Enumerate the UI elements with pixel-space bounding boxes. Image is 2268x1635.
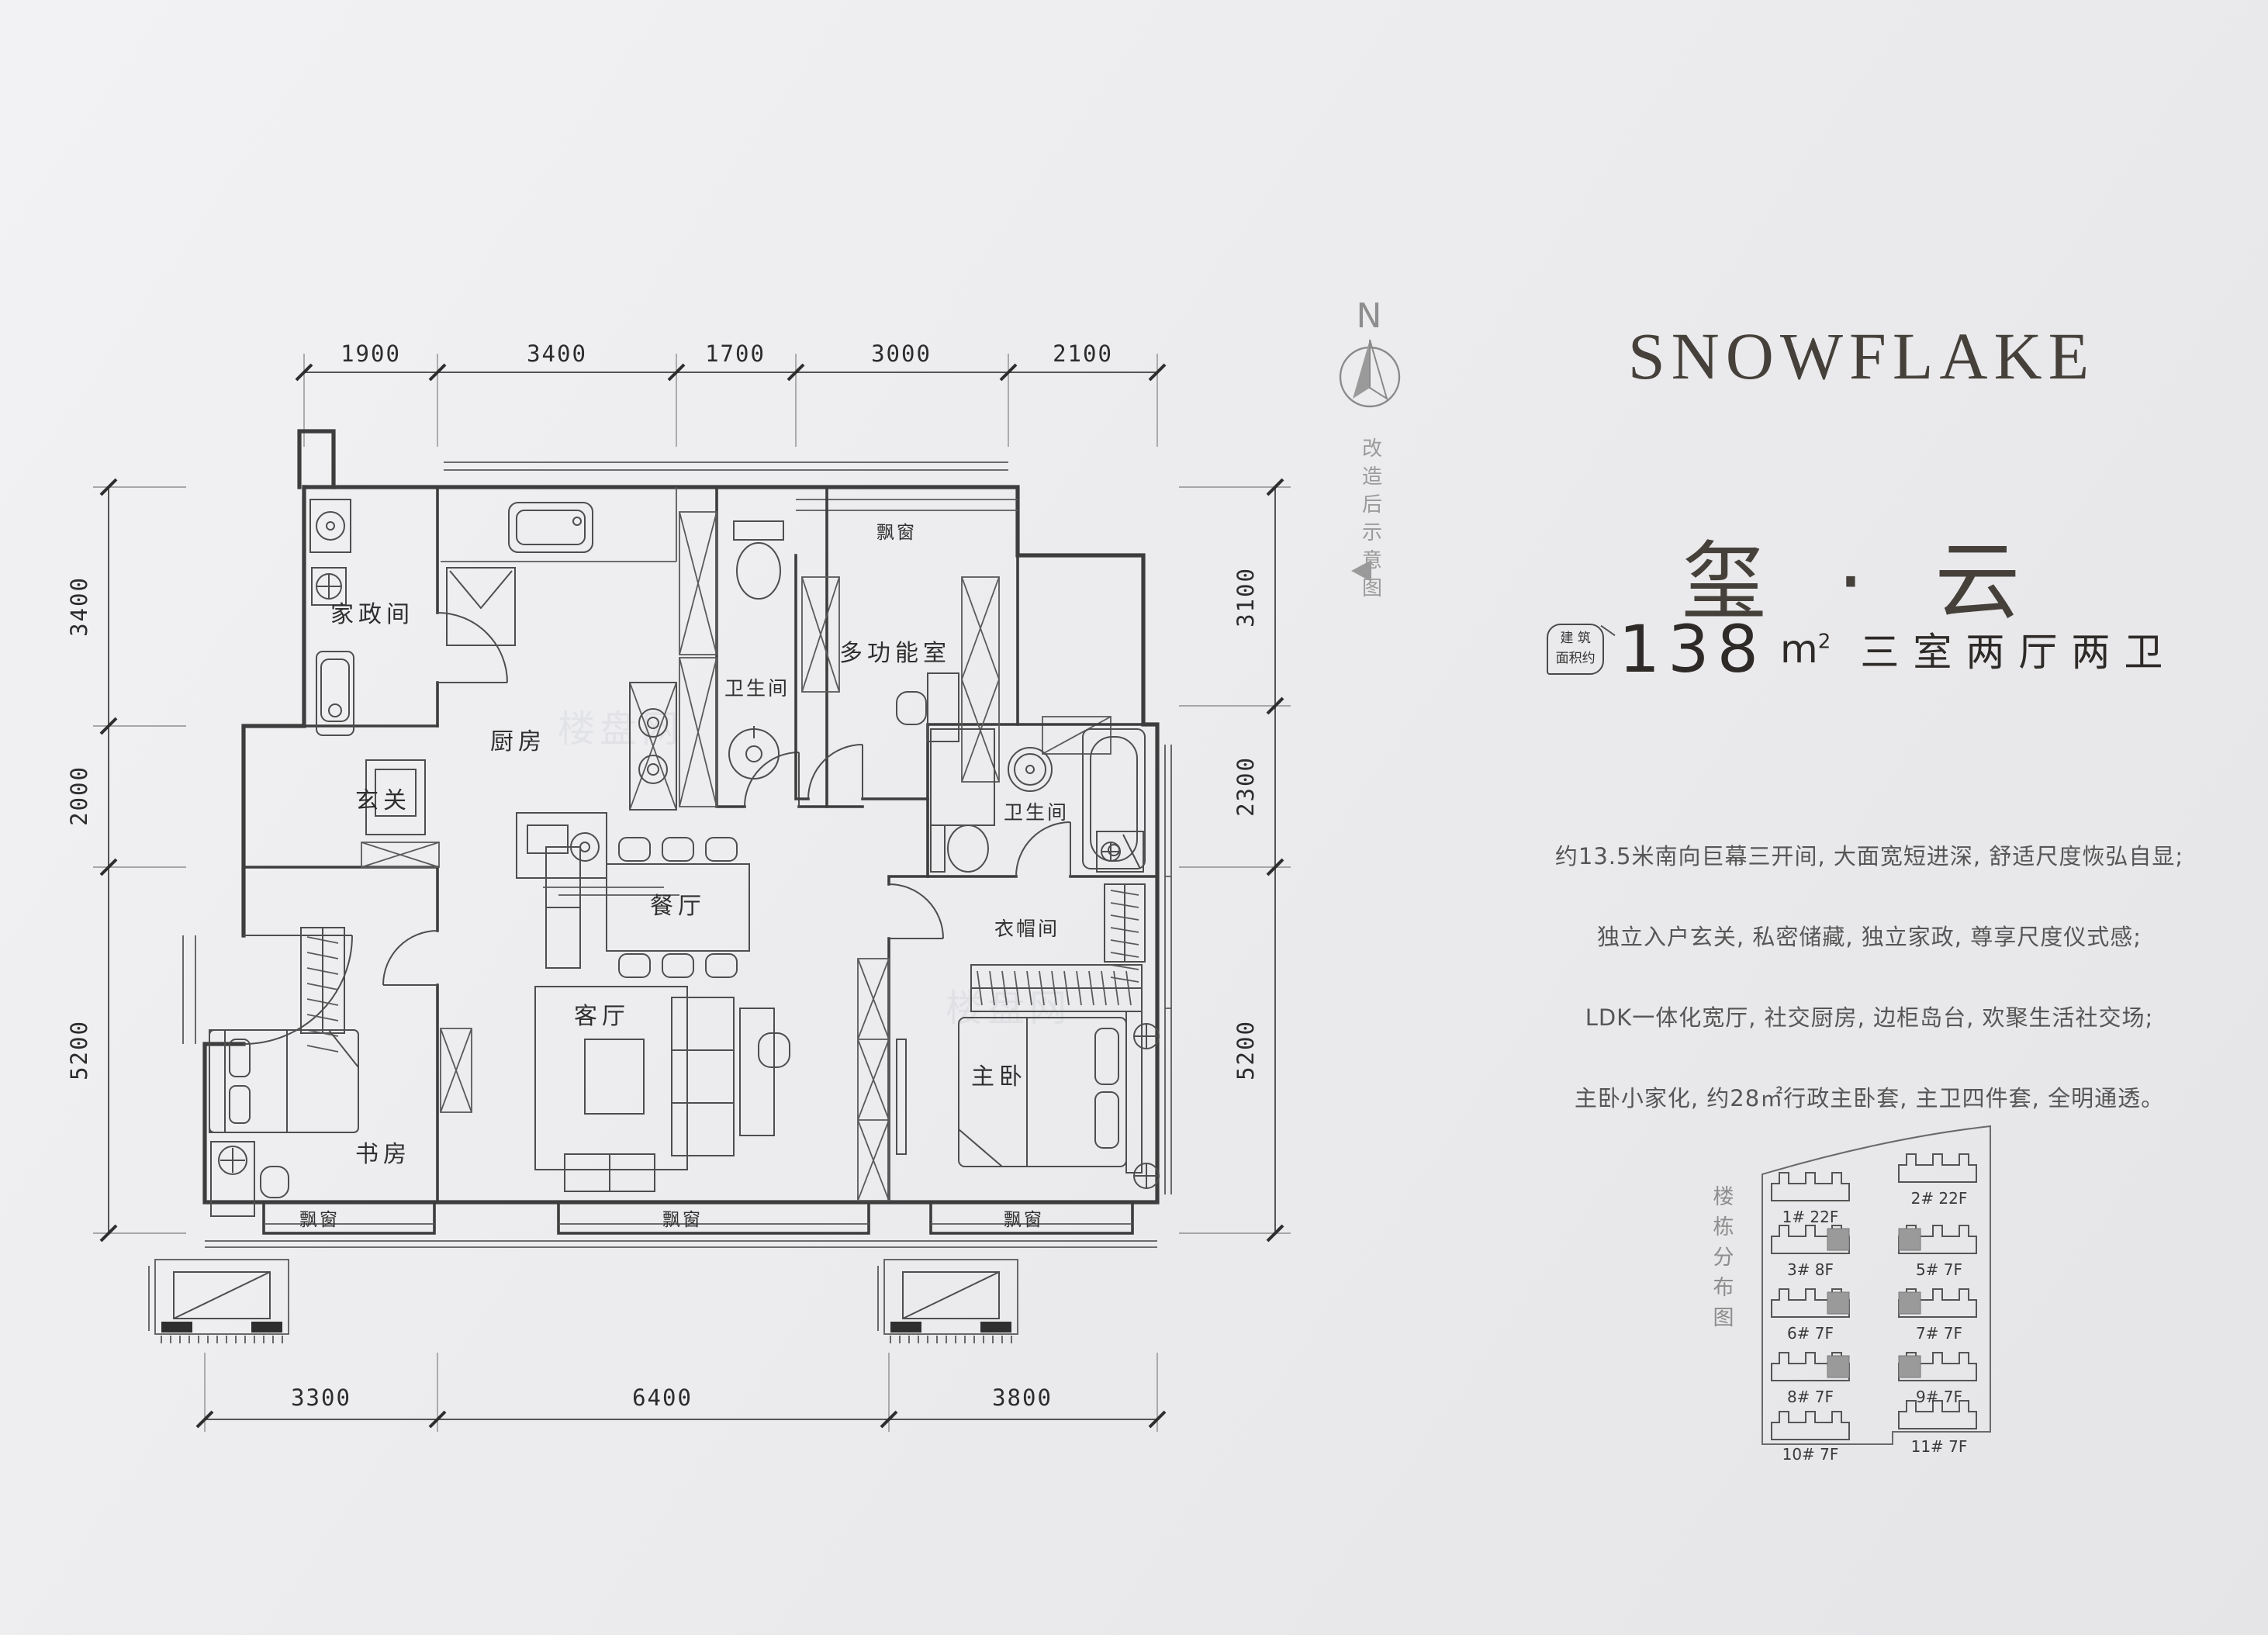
room-label-kitchen: 厨房 bbox=[490, 728, 546, 755]
floorplan-svg: 楼盘网 楼盘网 1900 3400 1700 3000 2100 3300 64… bbox=[0, 0, 2268, 1635]
room-label-cloak: 衣帽间 bbox=[994, 918, 1060, 940]
room-label-master: 主卧 bbox=[971, 1063, 1027, 1091]
dim-right-3: 5200 bbox=[1233, 1020, 1259, 1080]
room-label-bath-b: 卫生间 bbox=[1004, 801, 1069, 824]
dim-right-1: 3100 bbox=[1233, 567, 1259, 627]
ac-units bbox=[149, 1260, 1018, 1343]
brand-title-en: SNOWFLAKE bbox=[1489, 320, 2234, 396]
room-label-study: 书房 bbox=[355, 1141, 411, 1168]
bathroom-b-fixtures bbox=[931, 729, 1145, 872]
area-summary: 建 筑 面积约 138 m2 三室两厅两卫 bbox=[1489, 611, 2234, 687]
building-label-5: 5# 7F bbox=[1916, 1260, 1962, 1279]
outer-walls bbox=[183, 431, 1171, 1247]
dimension-left: 3400 2000 5200 bbox=[66, 479, 186, 1241]
description-line-2: 独立入户玄关, 私密储藏, 独立家政, 尊享尺度仪式感; bbox=[1443, 920, 2268, 952]
watermark-text: 楼盘网 bbox=[946, 987, 1071, 1030]
compass-n-label: N bbox=[1357, 296, 1384, 336]
bay-window-label-living: 飘窗 bbox=[662, 1210, 703, 1230]
bathroom-a-fixtures bbox=[729, 521, 783, 779]
multi-room-fixtures bbox=[802, 577, 999, 782]
building-label-9: 9# 7F bbox=[1916, 1388, 1962, 1406]
dim-left-2: 2000 bbox=[66, 766, 92, 826]
building-10 bbox=[1772, 1412, 1849, 1440]
building-label-11: 11# 7F bbox=[1911, 1437, 1968, 1456]
area-unit-sup: 2 bbox=[1818, 631, 1831, 654]
arrow-left-icon bbox=[1351, 560, 1371, 582]
area-unit: m2 bbox=[1780, 627, 1831, 672]
area-badge-line1: 建 筑 bbox=[1556, 630, 1596, 650]
building-label-6: 6# 7F bbox=[1787, 1324, 1834, 1343]
sitemap-label: 楼栋分布图 bbox=[1705, 1185, 1736, 1336]
bay-window-label-study: 飘窗 bbox=[299, 1210, 340, 1230]
area-badge: 建 筑 面积约 bbox=[1547, 624, 1605, 676]
description-line-1: 约13.5米南向巨幕三开间, 大面宽短进深, 舒适尺度恢弘自显; bbox=[1443, 839, 2268, 872]
master-bedroom-fixtures bbox=[897, 1011, 1159, 1188]
room-label-multi: 多功能室 bbox=[839, 640, 951, 667]
dim-bottom-2: 6400 bbox=[632, 1384, 693, 1411]
building-label-3: 3# 8F bbox=[1787, 1260, 1834, 1279]
page: 楼盘网 楼盘网 1900 3400 1700 3000 2100 3300 64… bbox=[0, 0, 2268, 1635]
building-label-1: 1# 22F bbox=[1782, 1208, 1839, 1226]
study-fixtures bbox=[209, 928, 358, 1216]
dim-left-1: 3400 bbox=[66, 576, 92, 637]
dim-top-4: 3000 bbox=[871, 340, 932, 367]
bay-window-label-top: 飘窗 bbox=[876, 523, 917, 543]
area-layout: 三室两厅两卫 bbox=[1860, 621, 2176, 677]
kitchen-fixtures bbox=[441, 487, 717, 895]
dim-top-1: 1900 bbox=[341, 340, 401, 367]
dim-top-5: 2100 bbox=[1053, 340, 1113, 367]
building-1 bbox=[1772, 1173, 1849, 1201]
sitemap: 1# 22F 2# 22F 3# 8F 5# 7F 6# 7F 7# 7F 8#… bbox=[1762, 1126, 1990, 1464]
building-label-2: 2# 22F bbox=[1911, 1189, 1968, 1208]
building-label-8: 8# 7F bbox=[1787, 1388, 1834, 1406]
room-label-foyer: 玄关 bbox=[355, 787, 411, 814]
dim-left-3: 5200 bbox=[66, 1020, 92, 1080]
dim-top-2: 3400 bbox=[527, 340, 587, 367]
dimension-top: 1900 3400 1700 3000 2100 bbox=[296, 340, 1165, 447]
dim-top-3: 1700 bbox=[705, 340, 766, 367]
building-label-10: 10# 7F bbox=[1782, 1445, 1839, 1464]
room-label-dining: 餐厅 bbox=[650, 893, 706, 920]
dimension-bottom: 3300 6400 3800 bbox=[197, 1353, 1165, 1432]
living-fixtures bbox=[535, 959, 889, 1201]
dimension-right: 3100 2300 5200 bbox=[1179, 479, 1291, 1241]
building-2 bbox=[1899, 1154, 1976, 1182]
dim-bottom-3: 3800 bbox=[992, 1384, 1053, 1411]
dim-bottom-1: 3300 bbox=[291, 1384, 351, 1411]
dim-right-2: 2300 bbox=[1233, 756, 1259, 817]
room-label-bath-a: 卫生间 bbox=[724, 677, 790, 700]
bay-window-label-master: 飘窗 bbox=[1004, 1210, 1044, 1230]
compass: N bbox=[1340, 296, 1399, 406]
room-label-laundry: 家政间 bbox=[330, 601, 414, 628]
description-line-4: 主卧小家化, 约28㎡行政主卧套, 主卫四件套, 全明通透。 bbox=[1443, 1081, 2268, 1114]
room-label-living: 客厅 bbox=[574, 1003, 630, 1030]
description-line-3: LDK一体化宽厅, 社交厨房, 边柜岛台, 欢聚生活社交场; bbox=[1443, 1001, 2268, 1033]
building-label-7: 7# 7F bbox=[1916, 1324, 1962, 1343]
area-value: 138 bbox=[1619, 611, 1766, 687]
area-badge-line2: 面积约 bbox=[1556, 649, 1596, 669]
